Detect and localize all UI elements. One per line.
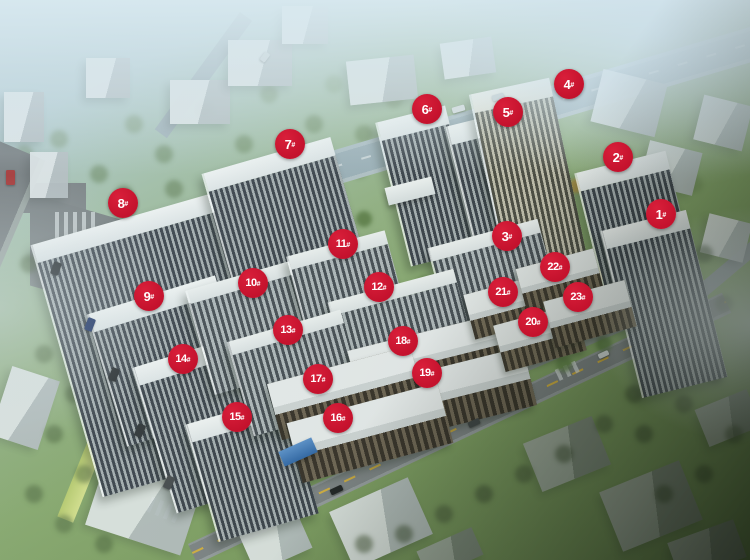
building-marker-3[interactable]: 3# [492, 221, 522, 251]
building-marker-16[interactable]: 16# [323, 403, 353, 433]
marker-number: 17 [310, 374, 321, 385]
building-marker-1[interactable]: 1# [646, 199, 676, 229]
marker-hash: # [257, 281, 261, 288]
marker-number: 15 [229, 412, 240, 423]
marker-number: 20 [525, 317, 536, 328]
marker-hash: # [509, 110, 513, 117]
marker-number: 14 [175, 354, 186, 365]
building-marker-4[interactable]: 4# [554, 69, 584, 99]
marker-number: 7 [285, 138, 292, 151]
marker-number: 1 [656, 208, 663, 221]
marker-number: 4 [564, 78, 571, 91]
marker-hash: # [507, 290, 511, 297]
building-marker-22[interactable]: 22# [540, 252, 570, 282]
marker-number: 9 [144, 290, 151, 303]
marker-hash: # [383, 285, 387, 292]
building-marker-15[interactable]: 15# [222, 402, 252, 432]
marker-hash: # [537, 320, 541, 327]
building-marker-10[interactable]: 10# [238, 268, 268, 298]
building-marker-2[interactable]: 2# [603, 142, 633, 172]
marker-number: 16 [330, 413, 341, 424]
building-marker-6[interactable]: 6# [412, 94, 442, 124]
marker-hash: # [619, 155, 623, 162]
masterplan-canvas: 1#2#3#4#5#6#7#8#9#10#11#12#13#14#15#16#1… [0, 0, 750, 560]
building-marker-8[interactable]: 8# [108, 188, 138, 218]
marker-hash: # [124, 201, 128, 208]
building-marker-13[interactable]: 13# [273, 315, 303, 345]
marker-hash: # [407, 339, 411, 346]
marker-hash: # [582, 295, 586, 302]
building-marker-5[interactable]: 5# [493, 97, 523, 127]
building-marker-9[interactable]: 9# [134, 281, 164, 311]
building-marker-11[interactable]: 11# [328, 229, 358, 259]
marker-number: 23 [570, 292, 581, 303]
building-marker-23[interactable]: 23# [563, 282, 593, 312]
marker-number: 11 [336, 239, 347, 250]
marker-hash: # [291, 142, 295, 149]
marker-number: 22 [547, 262, 558, 273]
marker-hash: # [342, 416, 346, 423]
marker-hash: # [187, 357, 191, 364]
building-marker-14[interactable]: 14# [168, 344, 198, 374]
building-marker-18[interactable]: 18# [388, 326, 418, 356]
building-marker-20[interactable]: 20# [518, 307, 548, 337]
marker-hash: # [241, 415, 245, 422]
marker-hash: # [570, 82, 574, 89]
marker-number: 13 [280, 325, 291, 336]
marker-number: 6 [422, 103, 429, 116]
marker-number: 10 [245, 278, 256, 289]
building-marker-21[interactable]: 21# [488, 277, 518, 307]
building-marker-17[interactable]: 17# [303, 364, 333, 394]
marker-number: 12 [371, 282, 382, 293]
marker-number: 8 [118, 197, 125, 210]
building-marker-12[interactable]: 12# [364, 272, 394, 302]
marker-number: 5 [503, 106, 510, 119]
marker-number: 3 [502, 230, 509, 243]
building-marker-7[interactable]: 7# [275, 129, 305, 159]
marker-number: 18 [395, 336, 406, 347]
marker-number: 2 [613, 151, 620, 164]
marker-hash: # [322, 377, 326, 384]
marker-hash: # [559, 265, 563, 272]
marker-hash: # [346, 242, 350, 249]
marker-hash: # [292, 328, 296, 335]
marker-hash: # [508, 234, 512, 241]
marker-number: 19 [419, 368, 430, 379]
building-markers-layer: 1#2#3#4#5#6#7#8#9#10#11#12#13#14#15#16#1… [0, 0, 750, 560]
marker-hash: # [150, 294, 154, 301]
marker-hash: # [662, 212, 666, 219]
marker-hash: # [428, 107, 432, 114]
building-marker-19[interactable]: 19# [412, 358, 442, 388]
marker-hash: # [431, 371, 435, 378]
marker-number: 21 [495, 287, 506, 298]
